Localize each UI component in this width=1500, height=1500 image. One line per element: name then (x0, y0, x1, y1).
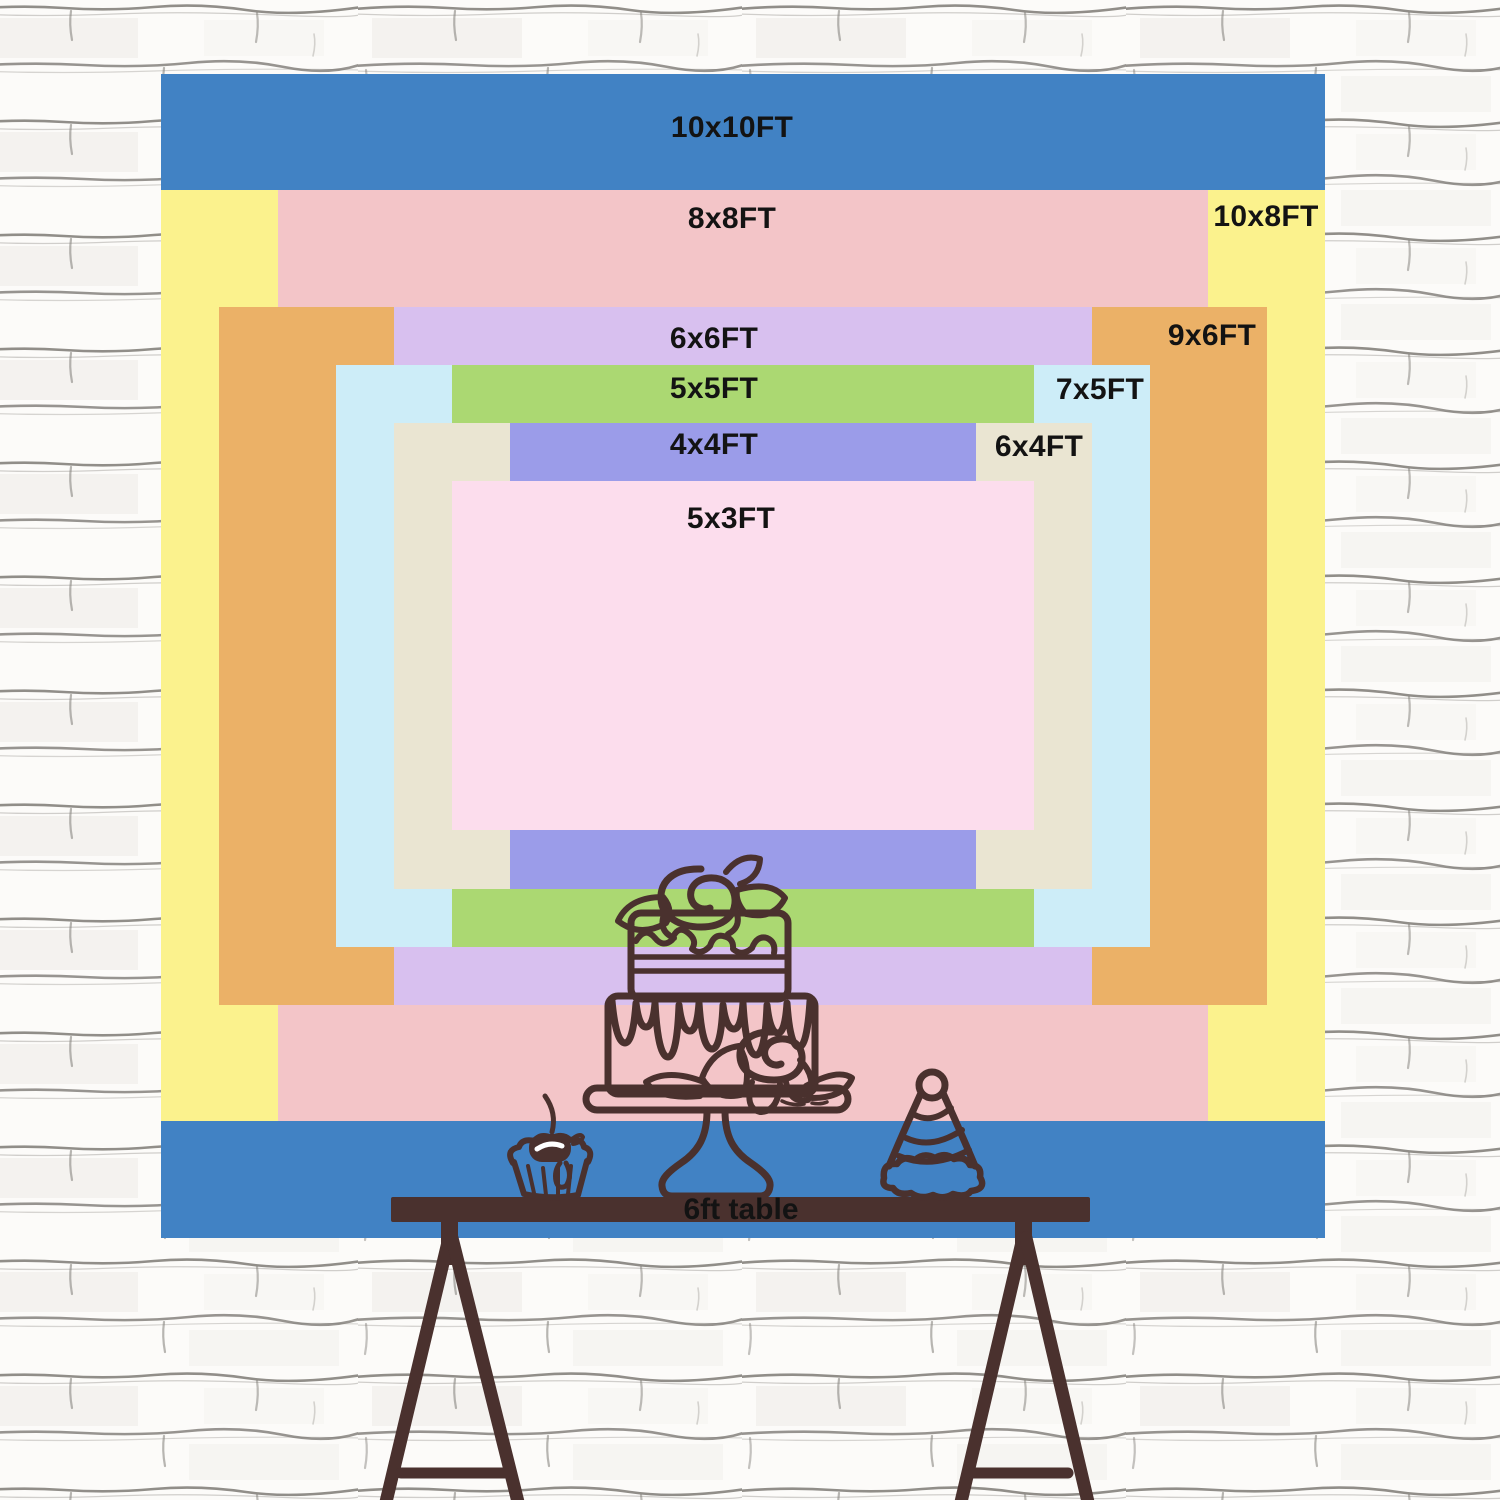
backdrop-size-chart-image: 10x10FT 10x8FT 8x8FT 9x6FT 6x6FT 7x5FT 5… (0, 0, 1500, 1500)
size-label-5x3ft: 5x3FT (687, 502, 775, 536)
table-size-label: 6ft table (683, 1193, 798, 1227)
size-label-8x8ft: 8x8FT (688, 202, 776, 236)
size-label-7x5ft: 7x5FT (1056, 373, 1144, 407)
size-label-10x8ft: 10x8FT (1213, 200, 1318, 234)
size-label-9x6ft: 9x6FT (1168, 319, 1256, 353)
size-label-10x10ft: 10x10FT (671, 111, 793, 145)
size-label-6x4ft: 6x4FT (995, 430, 1083, 464)
size-label-4x4ft: 4x4FT (670, 428, 758, 462)
size-label-6x6ft: 6x6FT (670, 322, 758, 356)
size-label-5x5ft: 5x5FT (670, 372, 758, 406)
